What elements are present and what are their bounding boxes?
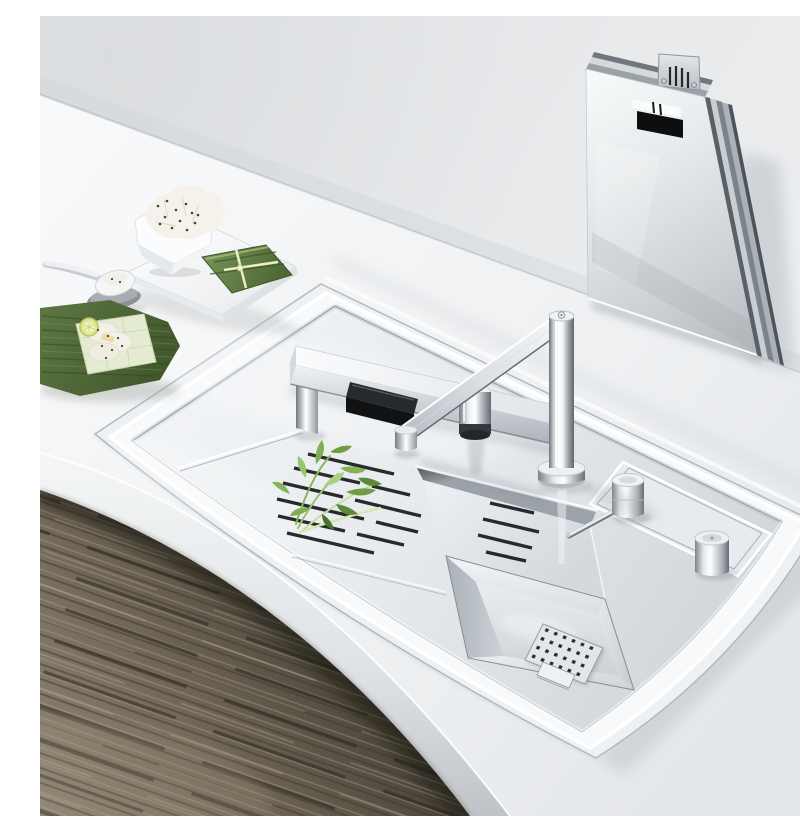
faucet-column: [549, 316, 574, 468]
sesame-speck: [111, 278, 113, 280]
spout-nozzle: [460, 430, 490, 440]
scene-canvas: [40, 16, 800, 816]
product-photo: [40, 16, 800, 816]
foot-shadow: [394, 450, 420, 458]
screw-icon: [692, 83, 697, 88]
screw-icon: [662, 79, 667, 84]
arm-foot-top: [395, 426, 417, 434]
sesame-speck: [119, 281, 121, 283]
rice-mound: [89, 343, 119, 361]
handle-prong-icon: [660, 104, 661, 115]
handle-prong-icon: [653, 102, 654, 113]
cap-dot-icon: [561, 314, 563, 316]
lever-tip: [566, 533, 571, 538]
twine-knot: [237, 265, 243, 271]
knob-dot: [711, 537, 714, 540]
panel-hanger-tab: [658, 54, 700, 90]
knob-top-inner: [619, 477, 637, 484]
leg-shadow: [294, 431, 326, 441]
